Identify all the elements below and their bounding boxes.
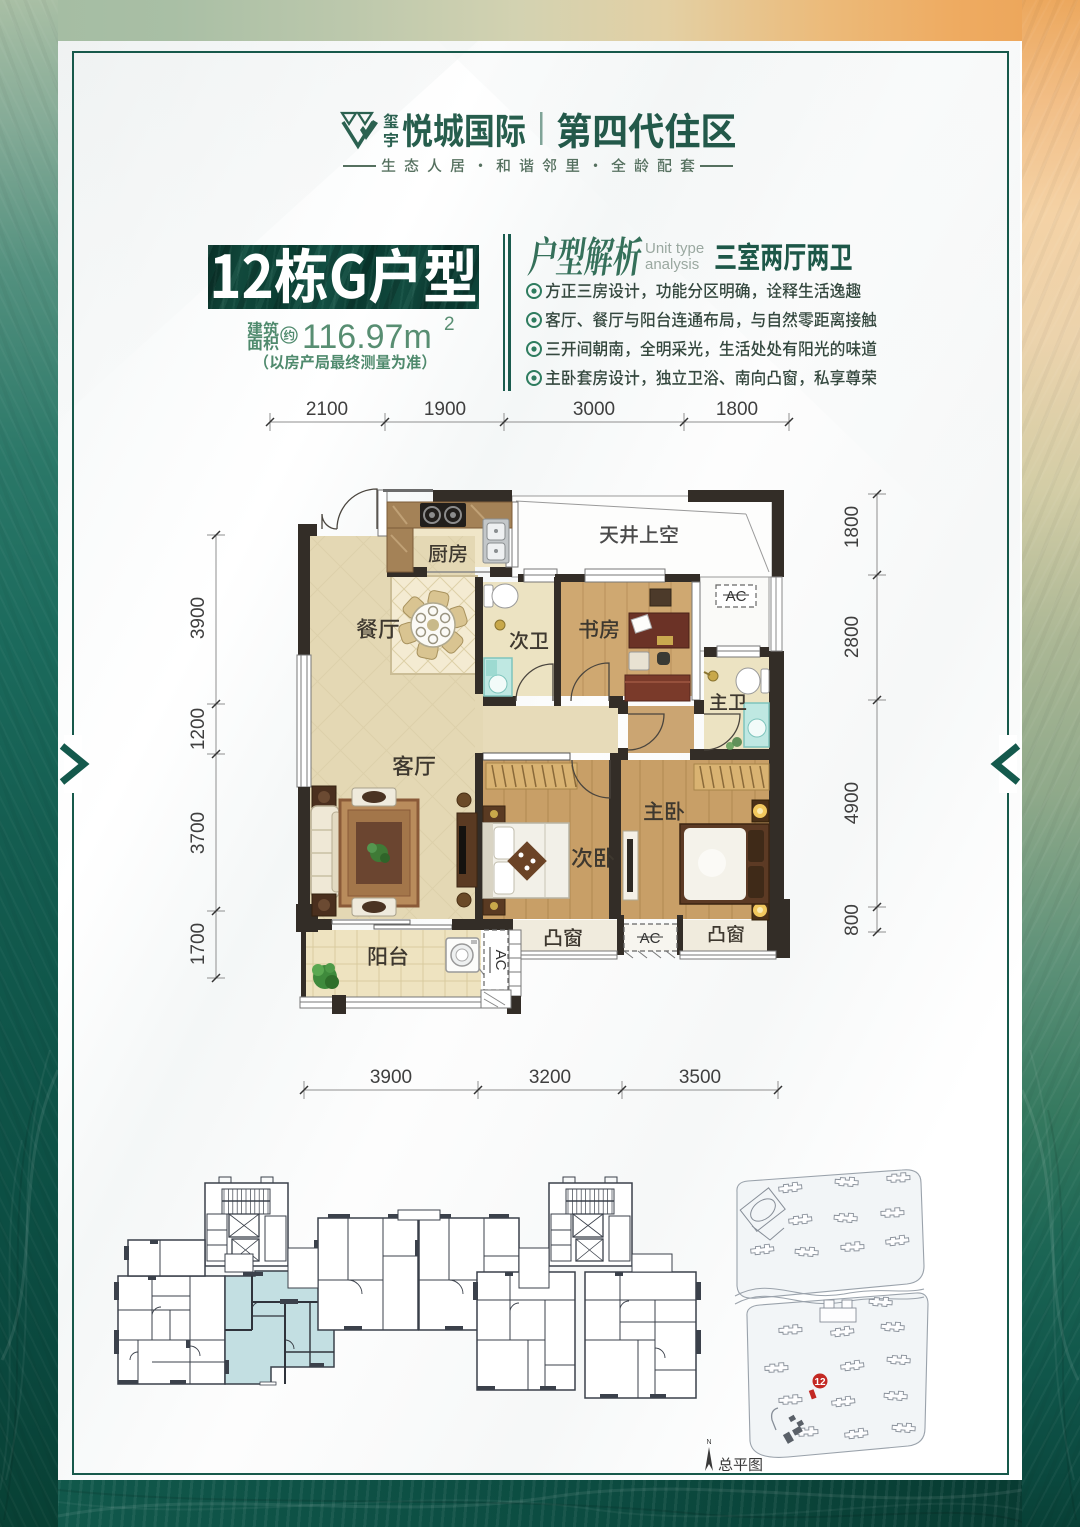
svg-text:AC: AC [640,930,661,947]
svg-text:2: 2 [444,314,455,335]
svg-text:analysis: analysis [645,256,699,273]
svg-text:AC: AC [726,588,747,605]
svg-text:116.97m: 116.97m [302,318,432,356]
svg-text:AC: AC [492,950,509,971]
svg-text:Unit type: Unit type [645,240,704,257]
